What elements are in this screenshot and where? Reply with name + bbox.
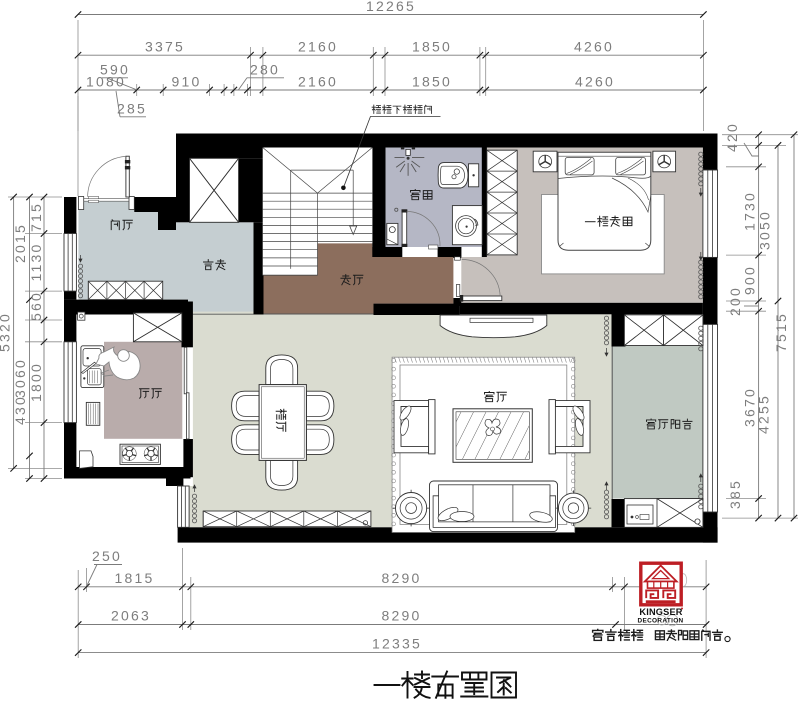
svg-text:250: 250	[92, 548, 122, 564]
svg-text:910: 910	[172, 74, 202, 90]
svg-text:4260: 4260	[575, 74, 615, 90]
svg-text:560: 560	[28, 291, 44, 321]
svg-text:430: 430	[12, 395, 28, 425]
svg-text:2160: 2160	[298, 39, 338, 55]
svg-text:4255: 4255	[756, 394, 772, 434]
svg-text:1730: 1730	[742, 191, 758, 231]
svg-text:420: 420	[724, 122, 740, 152]
svg-text:2015: 2015	[12, 223, 28, 263]
svg-text:280: 280	[250, 62, 280, 78]
svg-text:2063: 2063	[111, 608, 151, 624]
svg-text:3050: 3050	[757, 210, 773, 250]
svg-text:12335: 12335	[372, 636, 422, 652]
svg-text:7515: 7515	[773, 312, 789, 352]
svg-text:2160: 2160	[298, 74, 338, 90]
svg-text:715: 715	[28, 202, 44, 232]
svg-text:590: 590	[100, 62, 130, 78]
svg-text:1850: 1850	[412, 39, 452, 55]
svg-text:1800: 1800	[28, 362, 44, 402]
svg-text:1130: 1130	[28, 243, 44, 282]
svg-text:5320: 5320	[0, 312, 13, 352]
svg-text:900: 900	[742, 265, 758, 295]
svg-text:285: 285	[117, 101, 147, 117]
svg-text:3375: 3375	[145, 39, 185, 55]
svg-text:8290: 8290	[382, 608, 422, 624]
svg-text:KINGSER: KINGSER	[639, 607, 682, 617]
svg-text:1850: 1850	[412, 74, 452, 90]
svg-text:8290: 8290	[382, 570, 422, 586]
svg-text:3060: 3060	[12, 358, 28, 398]
svg-text:12265: 12265	[366, 0, 416, 14]
svg-text:DECORATION: DECORATION	[638, 618, 684, 625]
svg-text:200: 200	[727, 286, 743, 316]
svg-text:4260: 4260	[574, 39, 614, 55]
svg-text:1815: 1815	[115, 570, 155, 586]
svg-text:385: 385	[727, 479, 743, 509]
